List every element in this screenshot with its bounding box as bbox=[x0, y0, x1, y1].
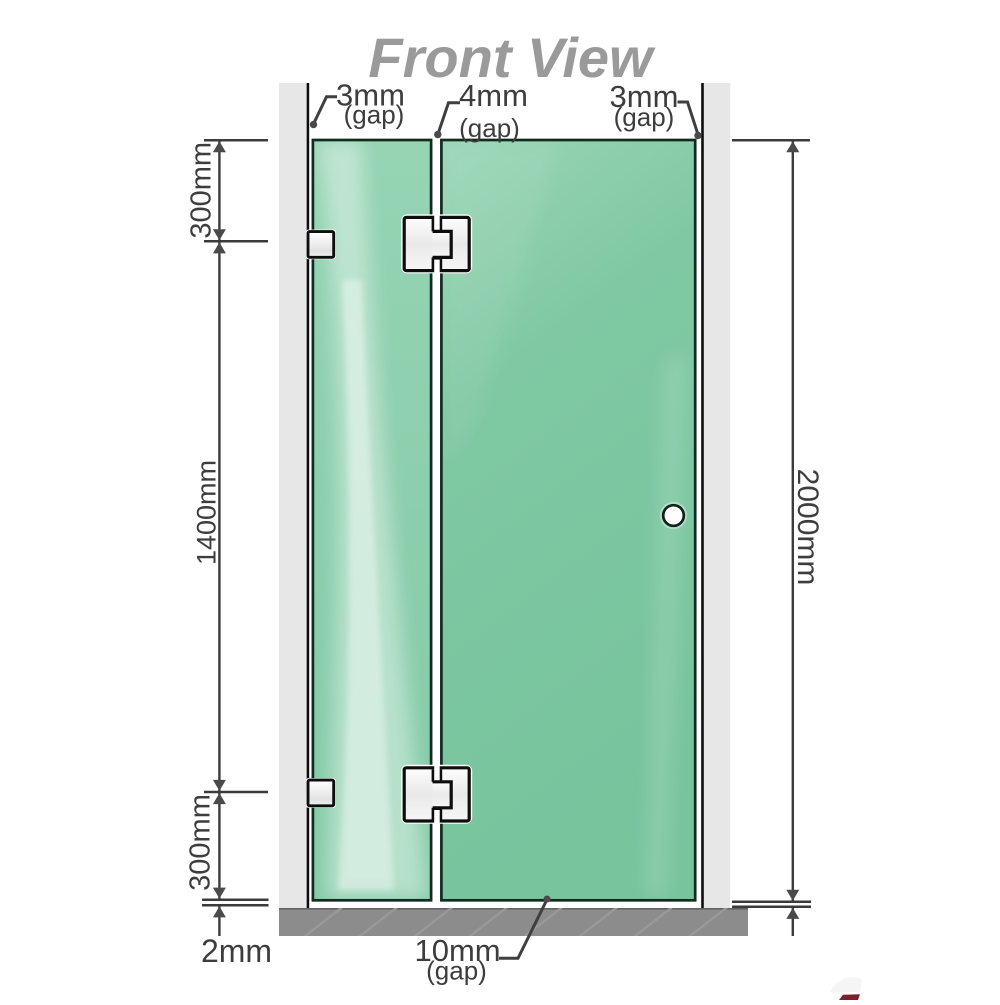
svg-text:(gap): (gap) bbox=[344, 100, 405, 130]
svg-text:4mm: 4mm bbox=[459, 78, 528, 113]
svg-text:2mm: 2mm bbox=[201, 933, 272, 969]
svg-text:300mm: 300mm bbox=[185, 794, 217, 891]
svg-text:(gap): (gap) bbox=[459, 113, 520, 143]
svg-text:2000mm: 2000mm bbox=[791, 469, 824, 586]
svg-text:(gap): (gap) bbox=[426, 956, 487, 986]
svg-text:300mm: 300mm bbox=[186, 142, 218, 239]
svg-text:1400mm: 1400mm bbox=[192, 460, 222, 565]
svg-text:(gap): (gap) bbox=[614, 102, 675, 132]
